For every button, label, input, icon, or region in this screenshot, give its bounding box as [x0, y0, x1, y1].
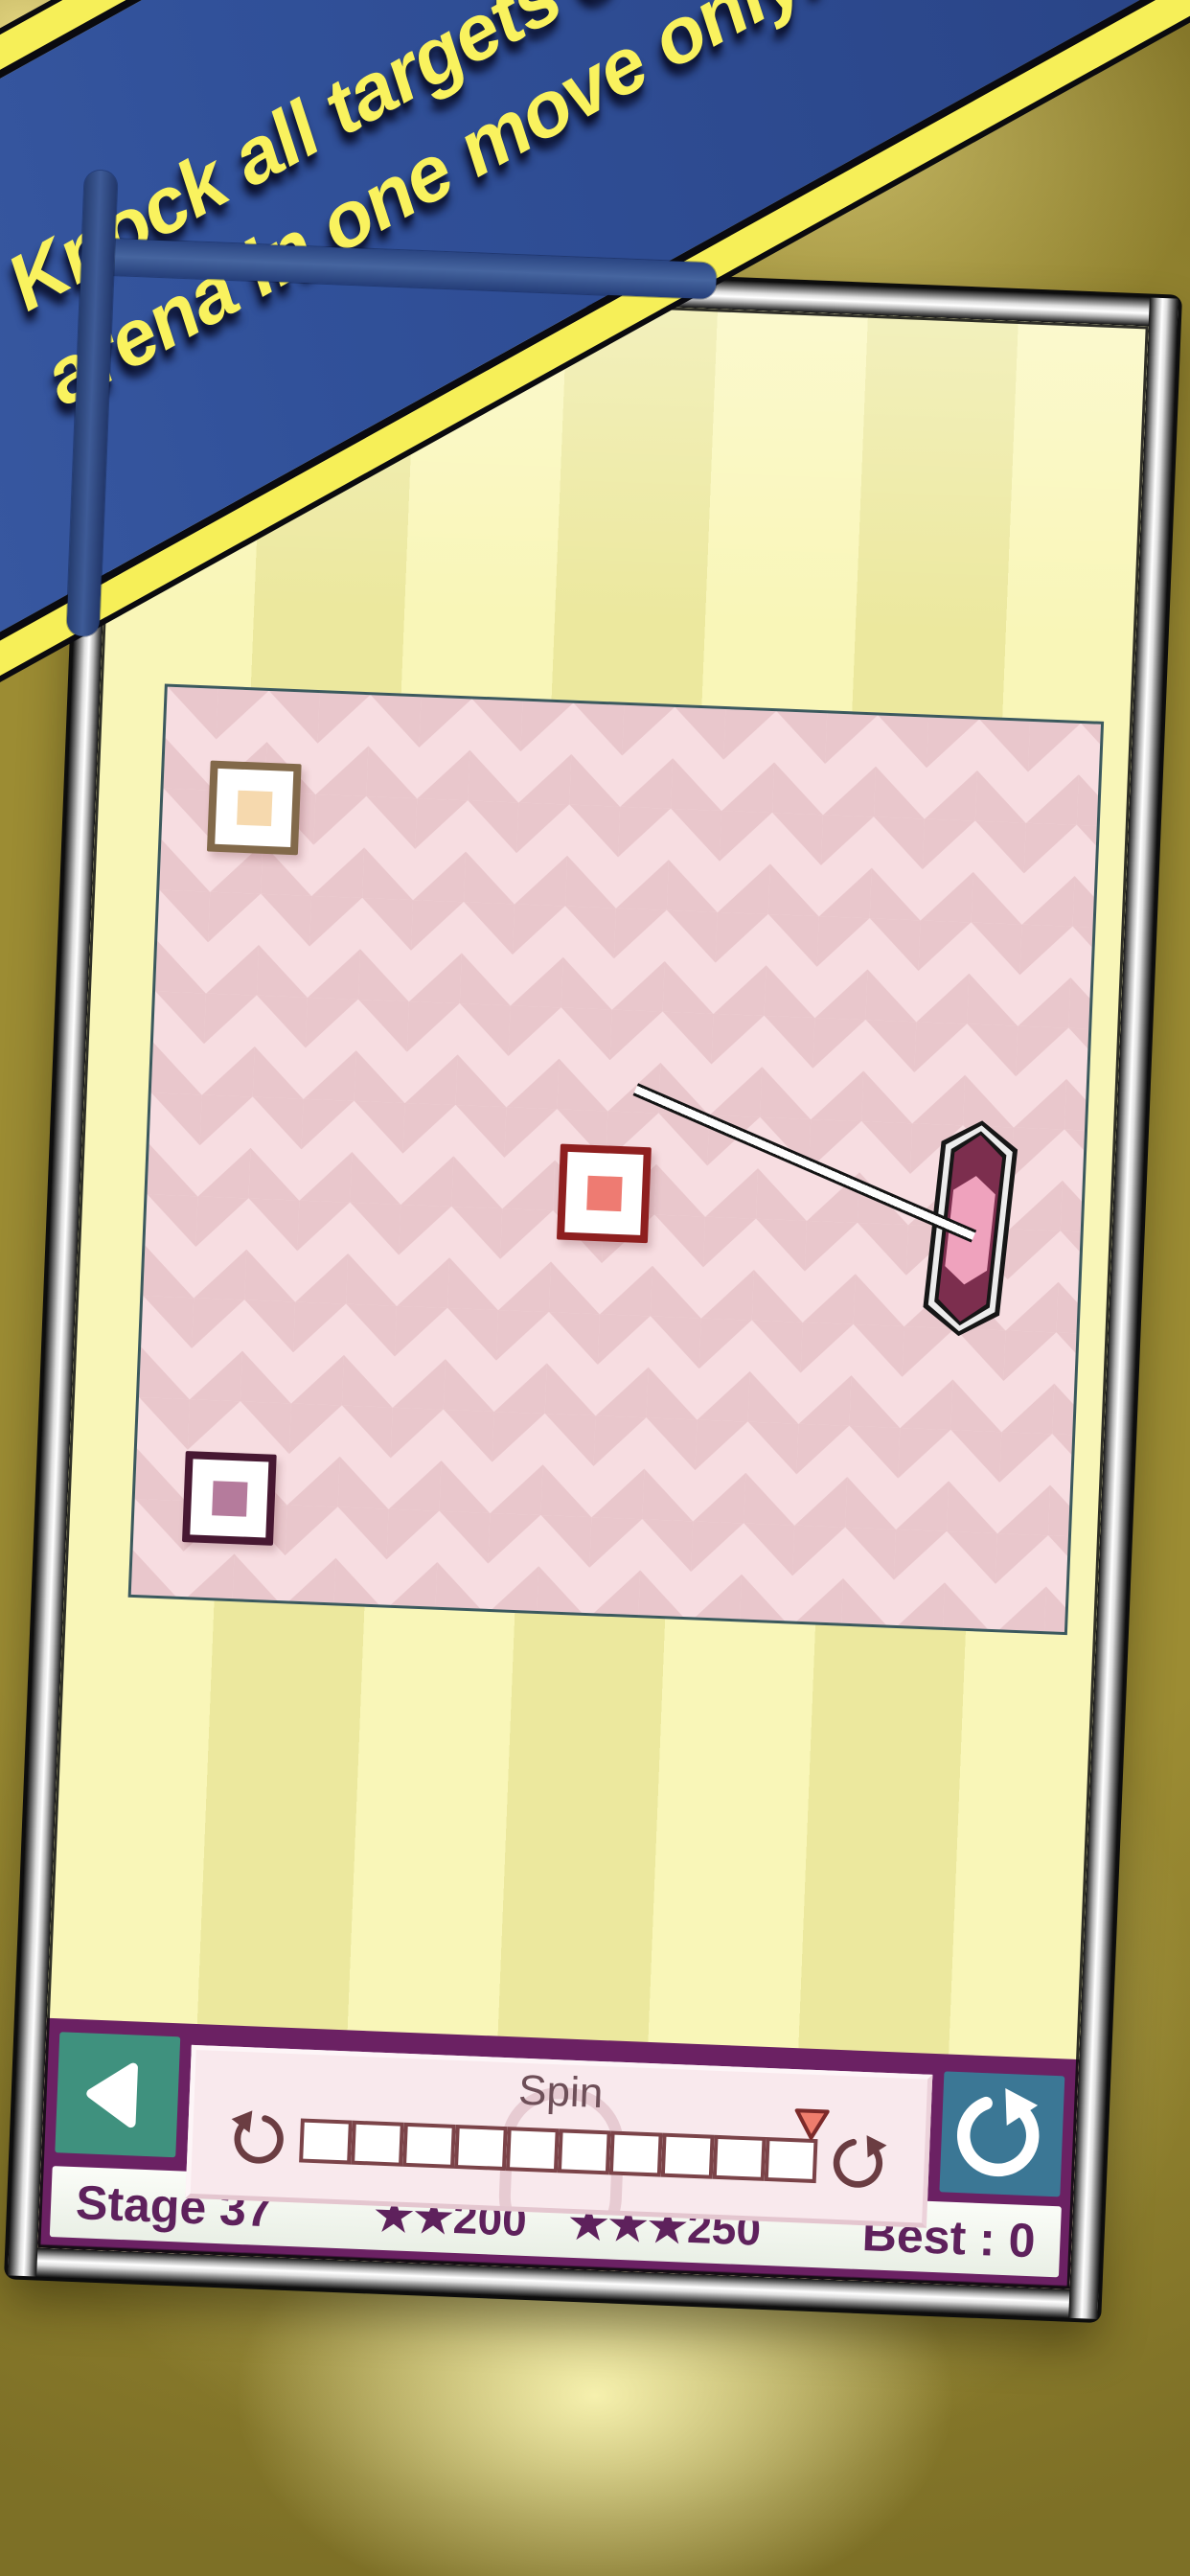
rotate-ccw-icon[interactable] — [224, 2104, 286, 2172]
back-triangle-icon — [78, 2055, 157, 2134]
restart-icon — [954, 2086, 1050, 2182]
spin-slider-cell[interactable] — [454, 2125, 508, 2171]
target-peach — [207, 761, 302, 856]
spin-slider-cell[interactable] — [351, 2121, 404, 2167]
restart-button[interactable] — [939, 2071, 1064, 2196]
target-core — [237, 790, 272, 825]
back-button[interactable] — [55, 2032, 180, 2157]
spin-slider-cell[interactable] — [765, 2137, 818, 2183]
wallpaper: Spin — [37, 285, 1148, 2289]
rotate-cw-icon[interactable] — [831, 2129, 893, 2196]
spin-slider-cell[interactable] — [299, 2118, 353, 2164]
control-panel: Spin — [37, 2018, 1079, 2289]
spin-slider-cell[interactable] — [661, 2133, 715, 2179]
spin-slider-track[interactable] — [299, 2118, 817, 2183]
target-core — [212, 1481, 247, 1516]
mallet-stick[interactable] — [633, 1083, 977, 1242]
target-red — [557, 1144, 652, 1244]
target-core — [586, 1176, 622, 1211]
target-plum — [182, 1451, 277, 1546]
spin-panel[interactable]: Spin — [186, 2045, 933, 2228]
spin-slider-cell[interactable] — [609, 2130, 663, 2176]
spin-slider-cell[interactable] — [713, 2135, 767, 2181]
spin-marker[interactable] — [792, 2107, 830, 2141]
arena[interactable] — [128, 684, 1104, 1636]
spin-slider-cell[interactable] — [402, 2123, 456, 2169]
spin-slider-cell[interactable] — [506, 2127, 560, 2173]
spin-slider-cell[interactable] — [558, 2128, 611, 2174]
